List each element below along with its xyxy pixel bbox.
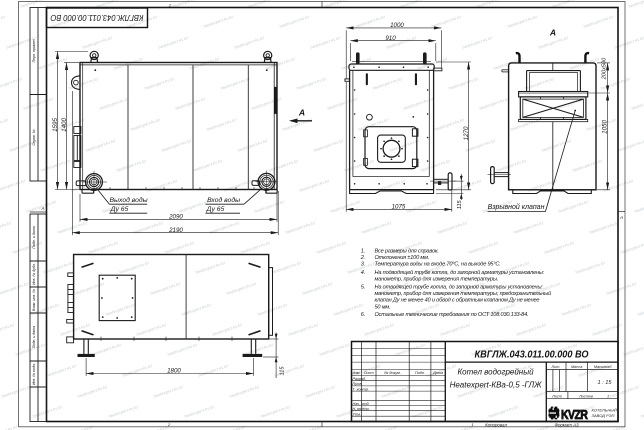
svg-text:Ду 65: Ду 65: [206, 206, 225, 213]
svg-text:Взам. инв. №: Взам. инв. №: [32, 289, 36, 311]
svg-text:Остальные технические требован: Остальные технические требования по ОСТ …: [375, 312, 529, 318]
svg-text:1595: 1595: [52, 118, 59, 132]
svg-text:А: А: [298, 108, 305, 118]
svg-text:Т. контр.: Т. контр.: [353, 387, 369, 391]
svg-text:ЗАВОД РЭП: ЗАВОД РЭП: [592, 413, 615, 418]
svg-text:50 мм.: 50 мм.: [375, 305, 391, 311]
svg-text:Подп. и дата: Подп. и дата: [32, 326, 36, 349]
svg-text:Справ. №: Справ. №: [32, 129, 36, 145]
svg-text:А: А: [549, 28, 556, 38]
svg-text:Температура воды на входе 70°С: Температура воды на входе 70°С, на выход…: [375, 262, 501, 268]
svg-text:Н. контр.: Н. контр.: [353, 407, 370, 411]
svg-text:6.: 6.: [361, 312, 365, 318]
svg-text:Масса: Масса: [571, 365, 582, 369]
svg-text:5.: 5.: [361, 285, 365, 291]
svg-text:Перв. примен.: Перв. примен.: [32, 39, 36, 63]
svg-text:Пров.: Пров.: [353, 382, 363, 386]
svg-text:Дата: Дата: [432, 371, 443, 375]
svg-text:Листов: Листов: [578, 395, 593, 399]
svg-text:А: А: [41, 206, 45, 211]
svg-text:КВГЛЖ.043.011.00.000 ВО: КВГЛЖ.043.011.00.000 ВО: [51, 13, 144, 22]
svg-text:Масштаб: Масштаб: [594, 365, 613, 369]
svg-text:1800: 1800: [167, 368, 181, 375]
svg-text:Отклонения ±100 мм.: Отклонения ±100 мм.: [375, 255, 430, 261]
svg-text:Изм.: Изм.: [352, 371, 360, 375]
svg-text:Инв. № подл.: Инв. № подл.: [32, 363, 36, 385]
svg-text:115: 115: [280, 366, 286, 376]
svg-text:2090: 2090: [168, 214, 183, 221]
svg-text:Вход воды: Вход воды: [207, 196, 240, 204]
svg-text:1: 1: [607, 395, 609, 399]
svg-text:На отводящей трубе котла, до з: На отводящей трубе котла, до запорной ар…: [375, 284, 544, 291]
svg-text:№ докум.: № докум.: [384, 371, 401, 375]
svg-text:1050: 1050: [602, 120, 609, 134]
svg-text:1 : 15: 1 : 15: [598, 380, 613, 386]
svg-text:Котел водогрейный: Котел водогрейный: [457, 368, 534, 377]
svg-text:Ду 65: Ду 65: [110, 206, 129, 213]
svg-text:Все размеры для справок.: Все размеры для справок.: [375, 249, 439, 255]
svg-text:Выход воды: Выход воды: [109, 196, 147, 204]
svg-text:Утв.: Утв.: [353, 412, 362, 416]
svg-text:Подп.: Подп.: [415, 371, 425, 375]
svg-text:КОТЕЛЬНЫЙ: КОТЕЛЬНЫЙ: [592, 407, 617, 412]
svg-text:На подводящей трубе котла, до: На подводящей трубе котла, до запорной а…: [375, 269, 545, 276]
svg-text:1270: 1270: [463, 126, 470, 140]
svg-text:2.: 2.: [360, 255, 365, 261]
svg-text:1.: 1.: [361, 249, 365, 255]
svg-text:Лист: Лист: [363, 371, 374, 375]
svg-text:KVZR: KVZR: [561, 408, 588, 422]
svg-text:910: 910: [385, 35, 396, 42]
svg-text:4.: 4.: [361, 270, 365, 276]
svg-text:Нач. отд.: Нач. отд.: [353, 402, 370, 406]
svg-text:1000: 1000: [390, 22, 404, 29]
svg-text:Разраб.: Разраб.: [353, 377, 367, 381]
svg-text:Лист: Лист: [551, 395, 562, 399]
svg-text:1400: 1400: [61, 118, 68, 132]
svg-text:Heatexpert-КВа-0,5 -ГЛЖ: Heatexpert-КВа-0,5 -ГЛЖ: [450, 381, 543, 390]
svg-text:манометр, прибор для измерения: манометр, прибор для измерения температу…: [375, 290, 552, 297]
svg-text:Копировал: Копировал: [485, 422, 507, 427]
svg-text:115: 115: [457, 199, 463, 209]
svg-text:1075: 1075: [392, 204, 406, 211]
svg-text:3.: 3.: [361, 262, 365, 268]
svg-text:манометр, прибор для измерения: манометр, прибор для измерения температу…: [375, 276, 499, 282]
svg-text:Формат А3: Формат А3: [554, 422, 579, 427]
svg-text:КВГЛЖ.043.011.00.000 ВО: КВГЛЖ.043.011.00.000 ВО: [475, 348, 589, 360]
svg-text:Подп. и дата: Подп. и дата: [32, 226, 36, 249]
svg-text:200х500: 200х500: [602, 57, 608, 80]
svg-text:1: 1: [472, 423, 474, 427]
svg-text:Инв. № дубл.: Инв. № дубл.: [32, 263, 36, 285]
svg-text:Взрывной клапан: Взрывной клапан: [488, 203, 545, 211]
svg-text:клапан Ду не менее 40 и обвод: клапан Ду не менее 40 и обвод с обратным…: [375, 298, 540, 304]
svg-text:А: А: [619, 215, 623, 220]
svg-text:2190: 2190: [168, 227, 183, 234]
svg-text:Лит.: Лит.: [551, 365, 561, 369]
